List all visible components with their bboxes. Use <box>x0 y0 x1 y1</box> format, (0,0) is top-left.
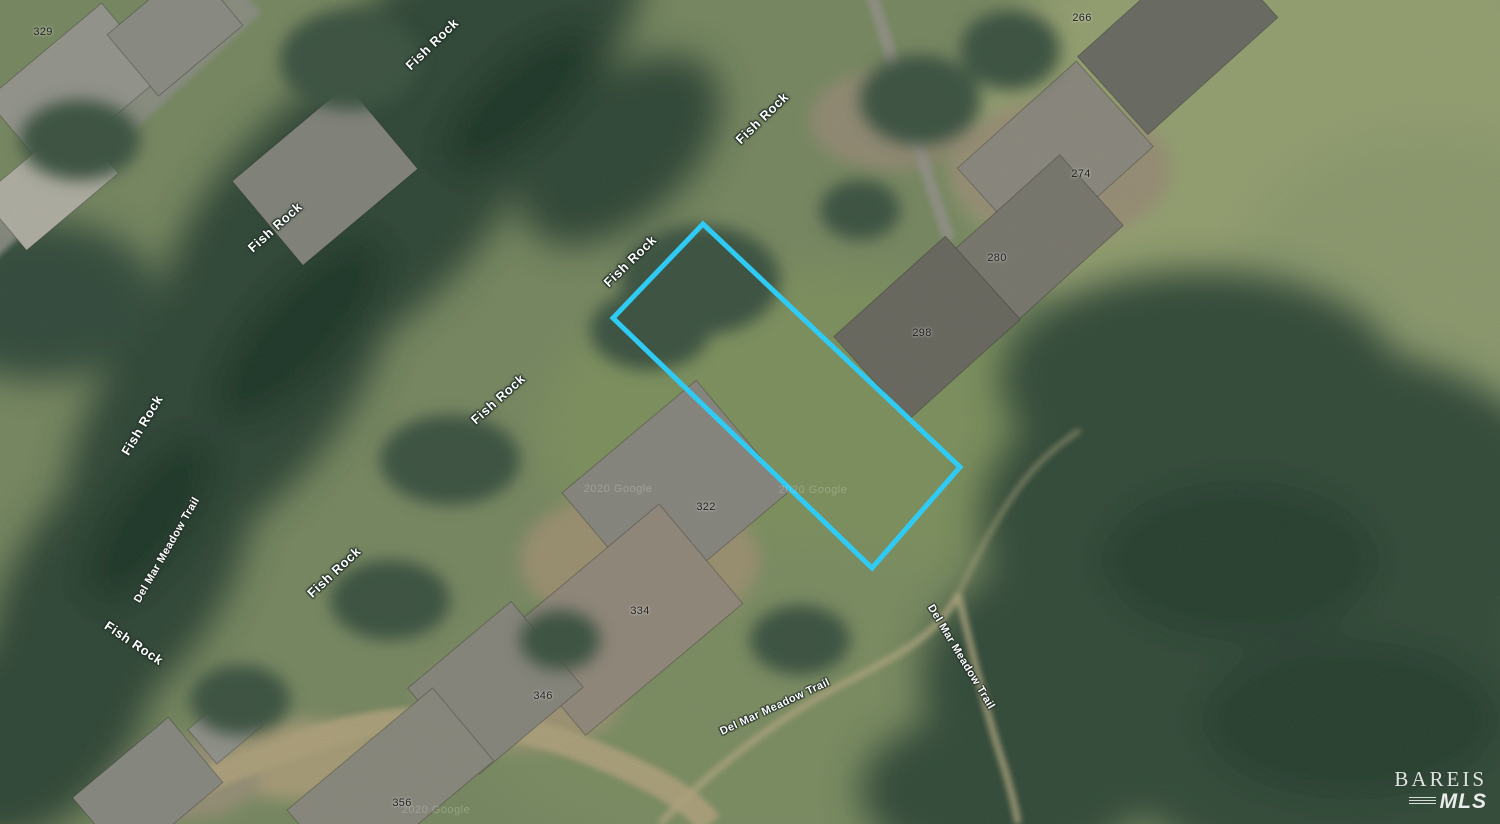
grain-overlay <box>0 0 1500 824</box>
satellite-imagery <box>0 0 1500 824</box>
satellite-map[interactable]: Fish Rock Fish Rock Fish Rock Fish Rock … <box>0 0 1500 824</box>
